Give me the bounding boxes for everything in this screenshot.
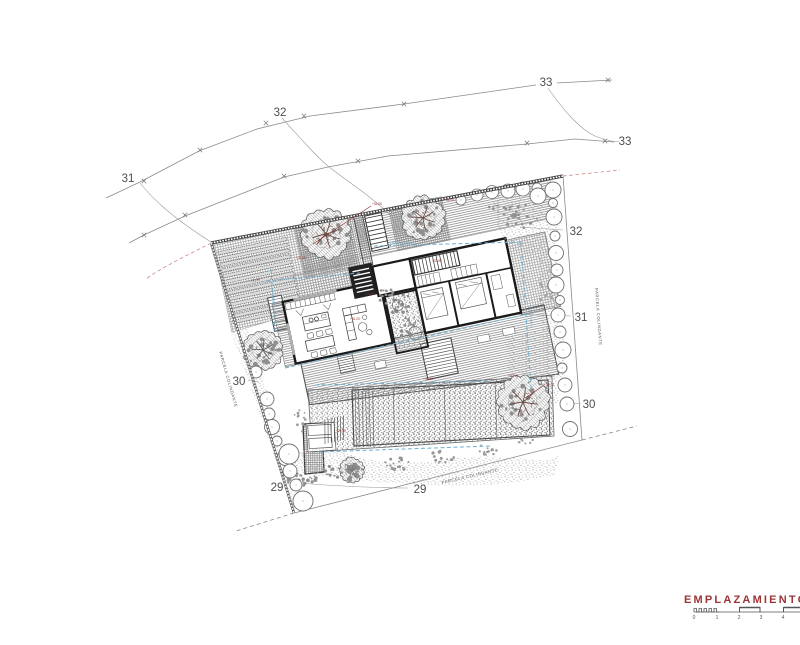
svg-text:+30.15: +30.15 [508, 374, 518, 378]
svg-text:+30.40: +30.40 [423, 377, 433, 381]
svg-text:30: 30 [233, 376, 246, 388]
svg-text:32: 32 [274, 107, 287, 119]
svg-text:+31.50: +31.50 [365, 292, 375, 296]
svg-text:33: 33 [619, 136, 632, 148]
svg-text:+32.06: +32.06 [372, 202, 382, 206]
svg-text:+31.20: +31.20 [350, 317, 360, 321]
svg-text:31: 31 [122, 173, 135, 185]
svg-text:32: 32 [570, 226, 583, 238]
svg-text:+31.95: +31.95 [432, 259, 442, 263]
svg-text:29: 29 [414, 484, 427, 496]
svg-text:LINDE A 3.00 m: LINDE A 3.00 m [390, 241, 413, 245]
svg-text:EMPLAZAMIENTO: EMPLAZAMIENTO [684, 594, 800, 606]
svg-text:+31.80: +31.80 [296, 256, 306, 260]
svg-text:3: 3 [760, 615, 763, 621]
svg-text:33: 33 [540, 77, 553, 89]
svg-text:4: 4 [782, 615, 785, 621]
svg-text:30: 30 [583, 399, 596, 411]
svg-text:1: 1 [716, 615, 719, 621]
svg-text:2: 2 [738, 615, 741, 621]
svg-text:+30.10: +30.10 [544, 383, 554, 387]
svg-text:+32.00: +32.00 [444, 198, 454, 202]
svg-text:29: 29 [271, 482, 284, 494]
svg-text:0: 0 [693, 615, 696, 621]
svg-text:31: 31 [575, 312, 588, 324]
svg-text:+29.80: +29.80 [336, 429, 346, 433]
